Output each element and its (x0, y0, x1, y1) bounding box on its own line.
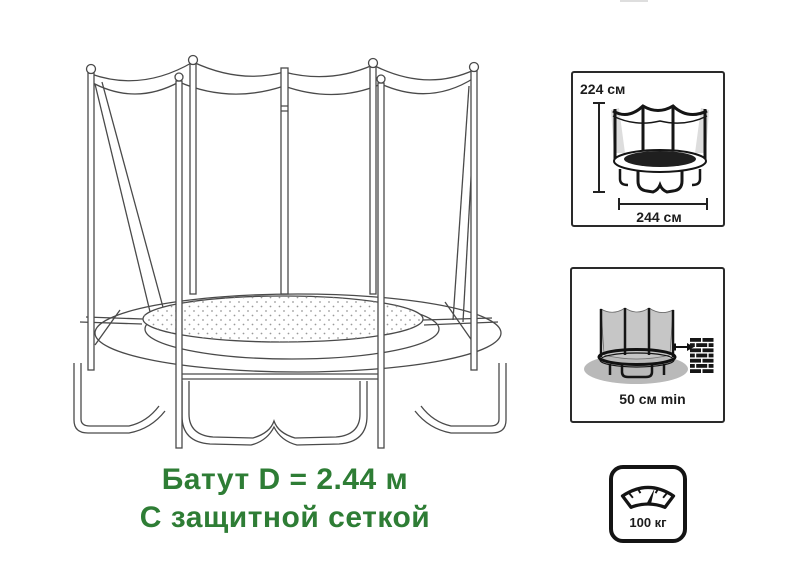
net-poles (87, 56, 479, 449)
weight-label: 100 кг (629, 515, 666, 530)
mini-trampoline (611, 105, 709, 192)
brick-wall-icon (690, 338, 714, 373)
weight-box: 100 кг (609, 465, 687, 543)
trampoline-bed (80, 294, 501, 372)
clearance-label: 50 см min (572, 391, 723, 407)
caption: Батут D = 2.44 м С защитной сеткой (40, 461, 530, 537)
height-dimension-line (593, 103, 605, 192)
mini-trampoline-gray (599, 308, 675, 377)
height-label: 224 см (580, 81, 625, 97)
dimensions-box: 224 см 244 см (571, 71, 725, 227)
trampoline-legs (74, 363, 506, 445)
caption-line-1: Батут D = 2.44 м (40, 461, 530, 499)
weight-scale-icon (619, 478, 677, 512)
clearance-box: 50 см min (570, 267, 725, 423)
product-infographic: Батут D = 2.44 м С защитной сеткой (0, 0, 808, 584)
top-edge-artifact (620, 0, 648, 2)
trampoline-with-safety-net-line-art (30, 30, 550, 460)
diameter-label: 244 см (573, 209, 723, 225)
caption-line-2: С защитной сеткой (40, 499, 530, 537)
